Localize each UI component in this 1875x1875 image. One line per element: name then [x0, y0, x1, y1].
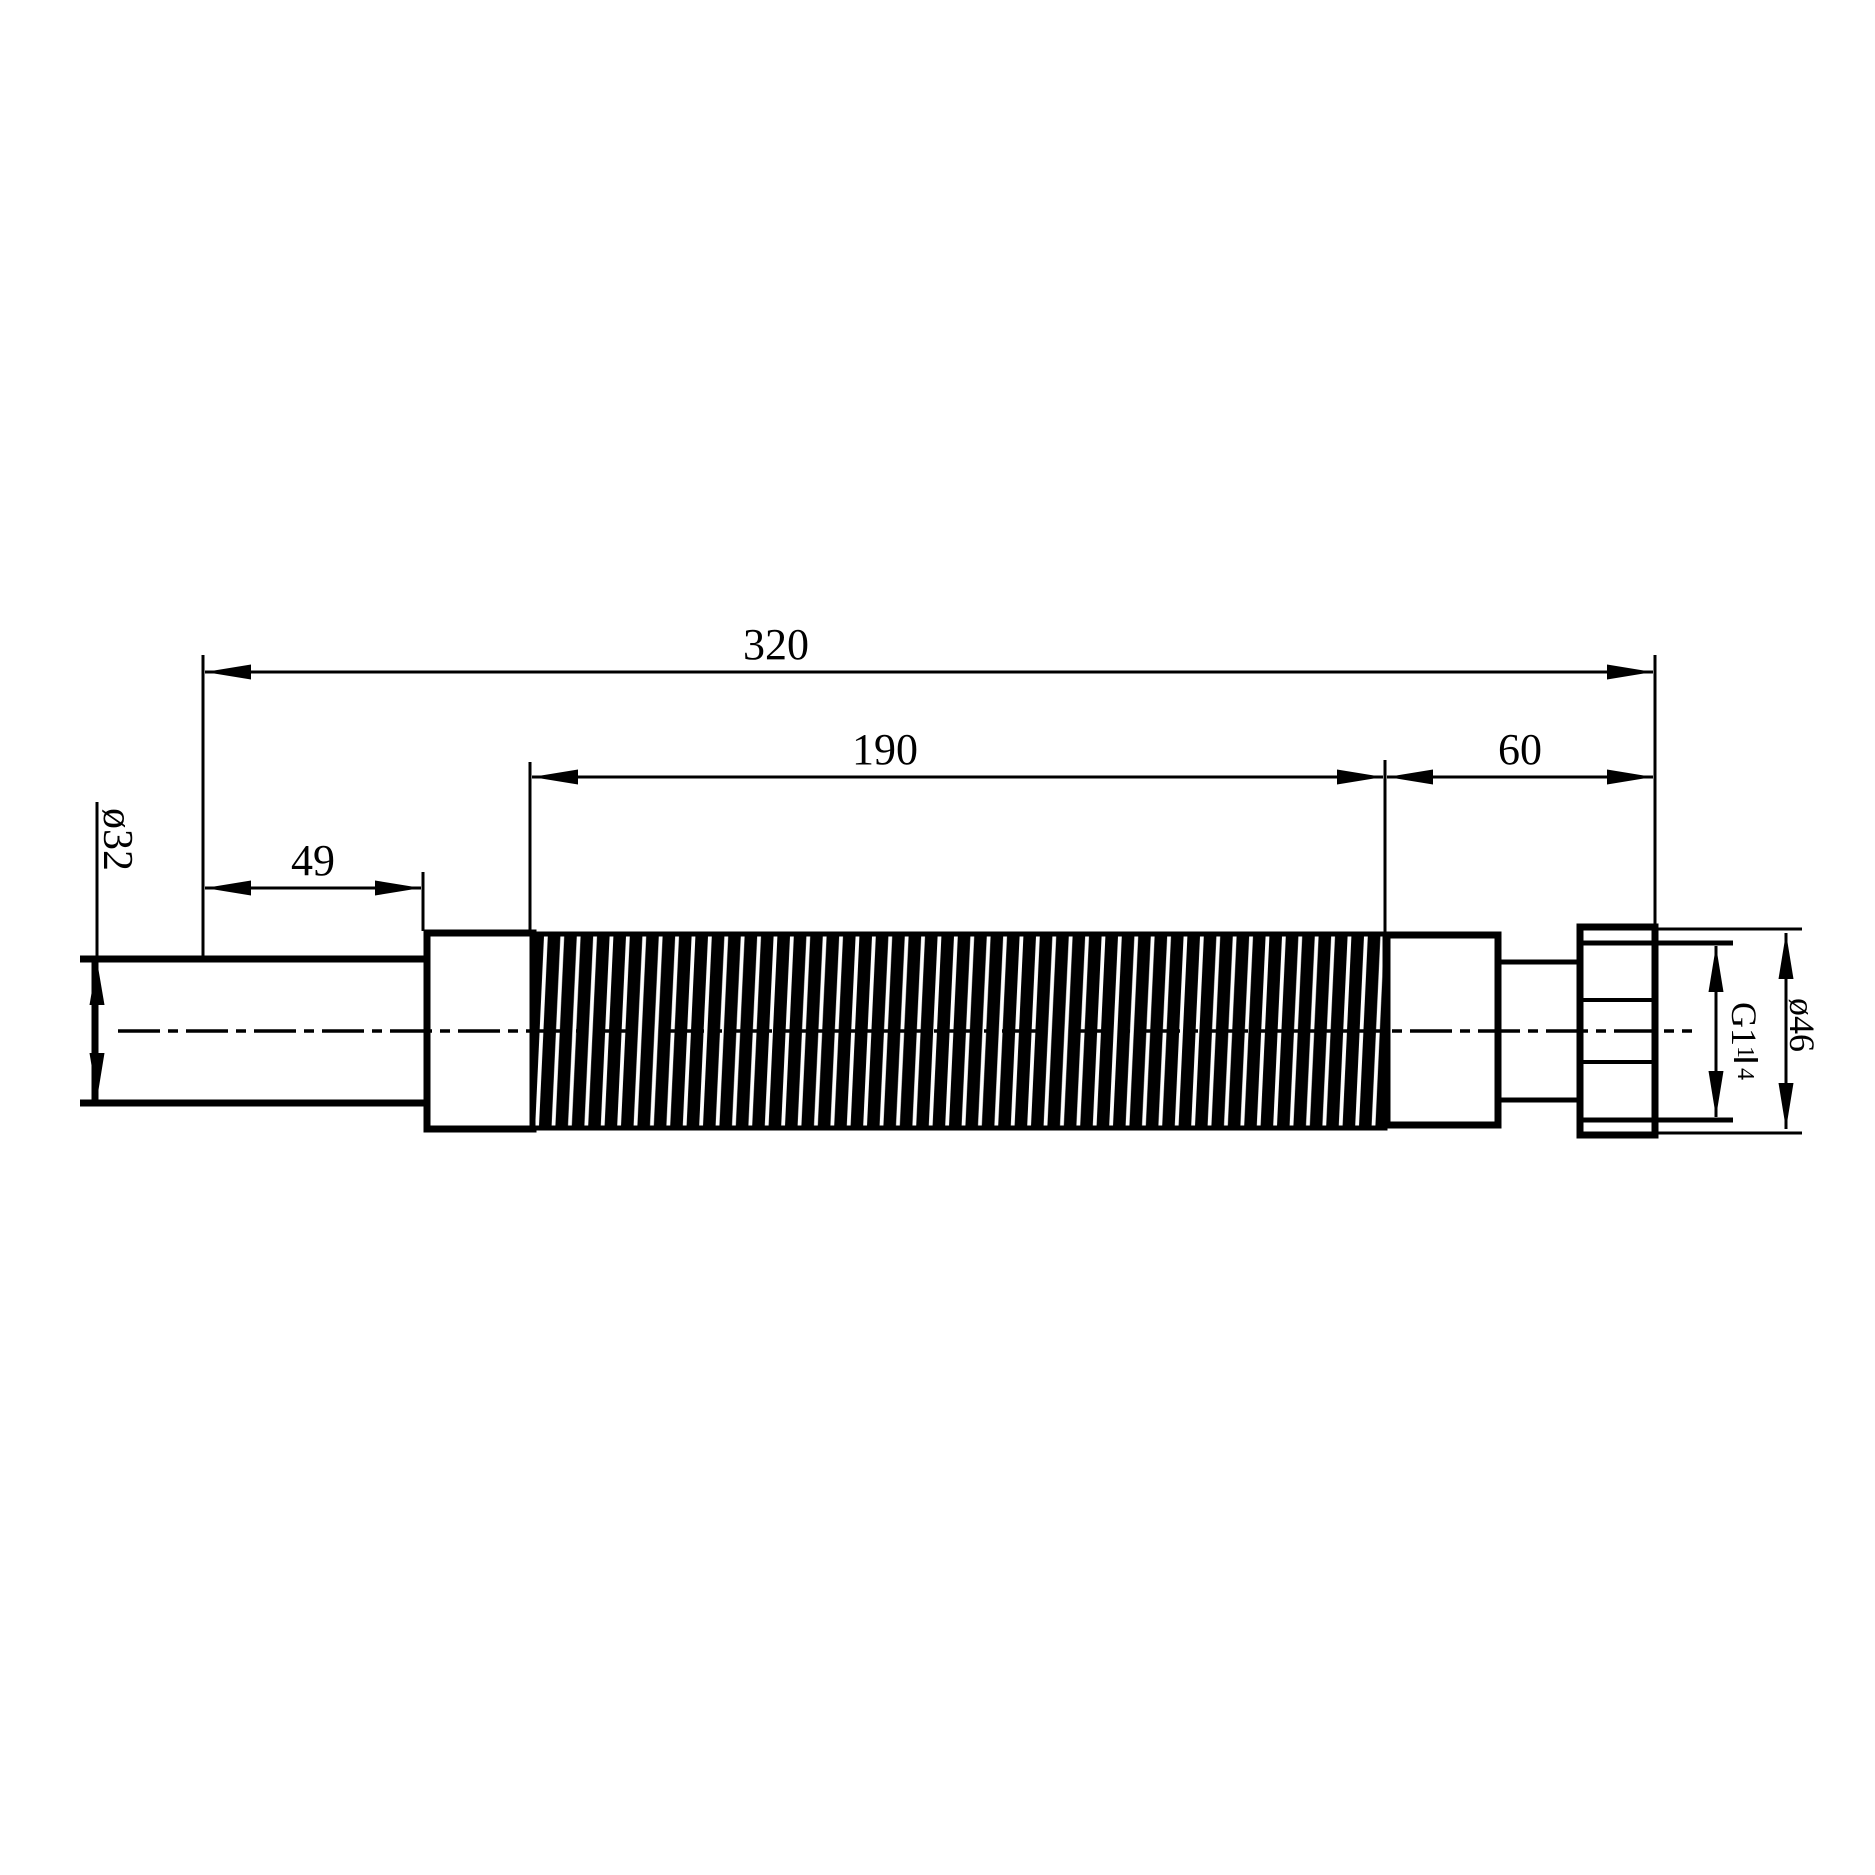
drawing-canvas: 320 190 60 49 ø32 G1 — [0, 0, 1875, 1875]
dim-value-190: 190 — [852, 725, 918, 774]
thread-prefix: G1 — [1724, 1002, 1764, 1046]
dim-value-49: 49 — [291, 836, 335, 885]
dim-value-dia32: ø32 — [94, 808, 140, 871]
pipe-drawing-svg: 320 190 60 49 ø32 G1 — [0, 0, 1875, 1875]
dim-value-320: 320 — [743, 620, 809, 669]
thread-fraction-denominator: 4 — [1732, 1068, 1758, 1080]
dim-value-dia46: ø46 — [1782, 998, 1822, 1052]
pipe-assembly — [80, 927, 1733, 1135]
thread-fraction-numerator: 1 — [1732, 1046, 1758, 1058]
dim-value-60: 60 — [1498, 725, 1542, 774]
